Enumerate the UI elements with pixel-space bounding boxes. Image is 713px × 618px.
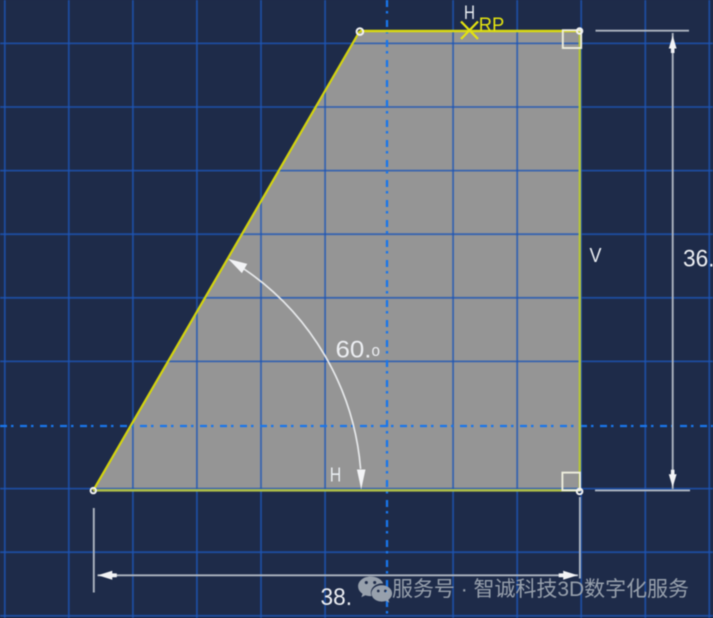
svg-text:服务号 · 智诚科技3D数字化服务: 服务号 · 智诚科技3D数字化服务 — [392, 578, 689, 601]
svg-text:60.: 60. — [336, 337, 372, 364]
svg-text:V: V — [590, 245, 603, 267]
svg-text:38.: 38. — [321, 584, 353, 611]
svg-text:H: H — [330, 465, 342, 487]
svg-text:H: H — [464, 2, 475, 24]
svg-text:36.: 36. — [683, 246, 713, 273]
svg-text:o: o — [372, 342, 381, 360]
svg-text:RP: RP — [479, 14, 505, 36]
